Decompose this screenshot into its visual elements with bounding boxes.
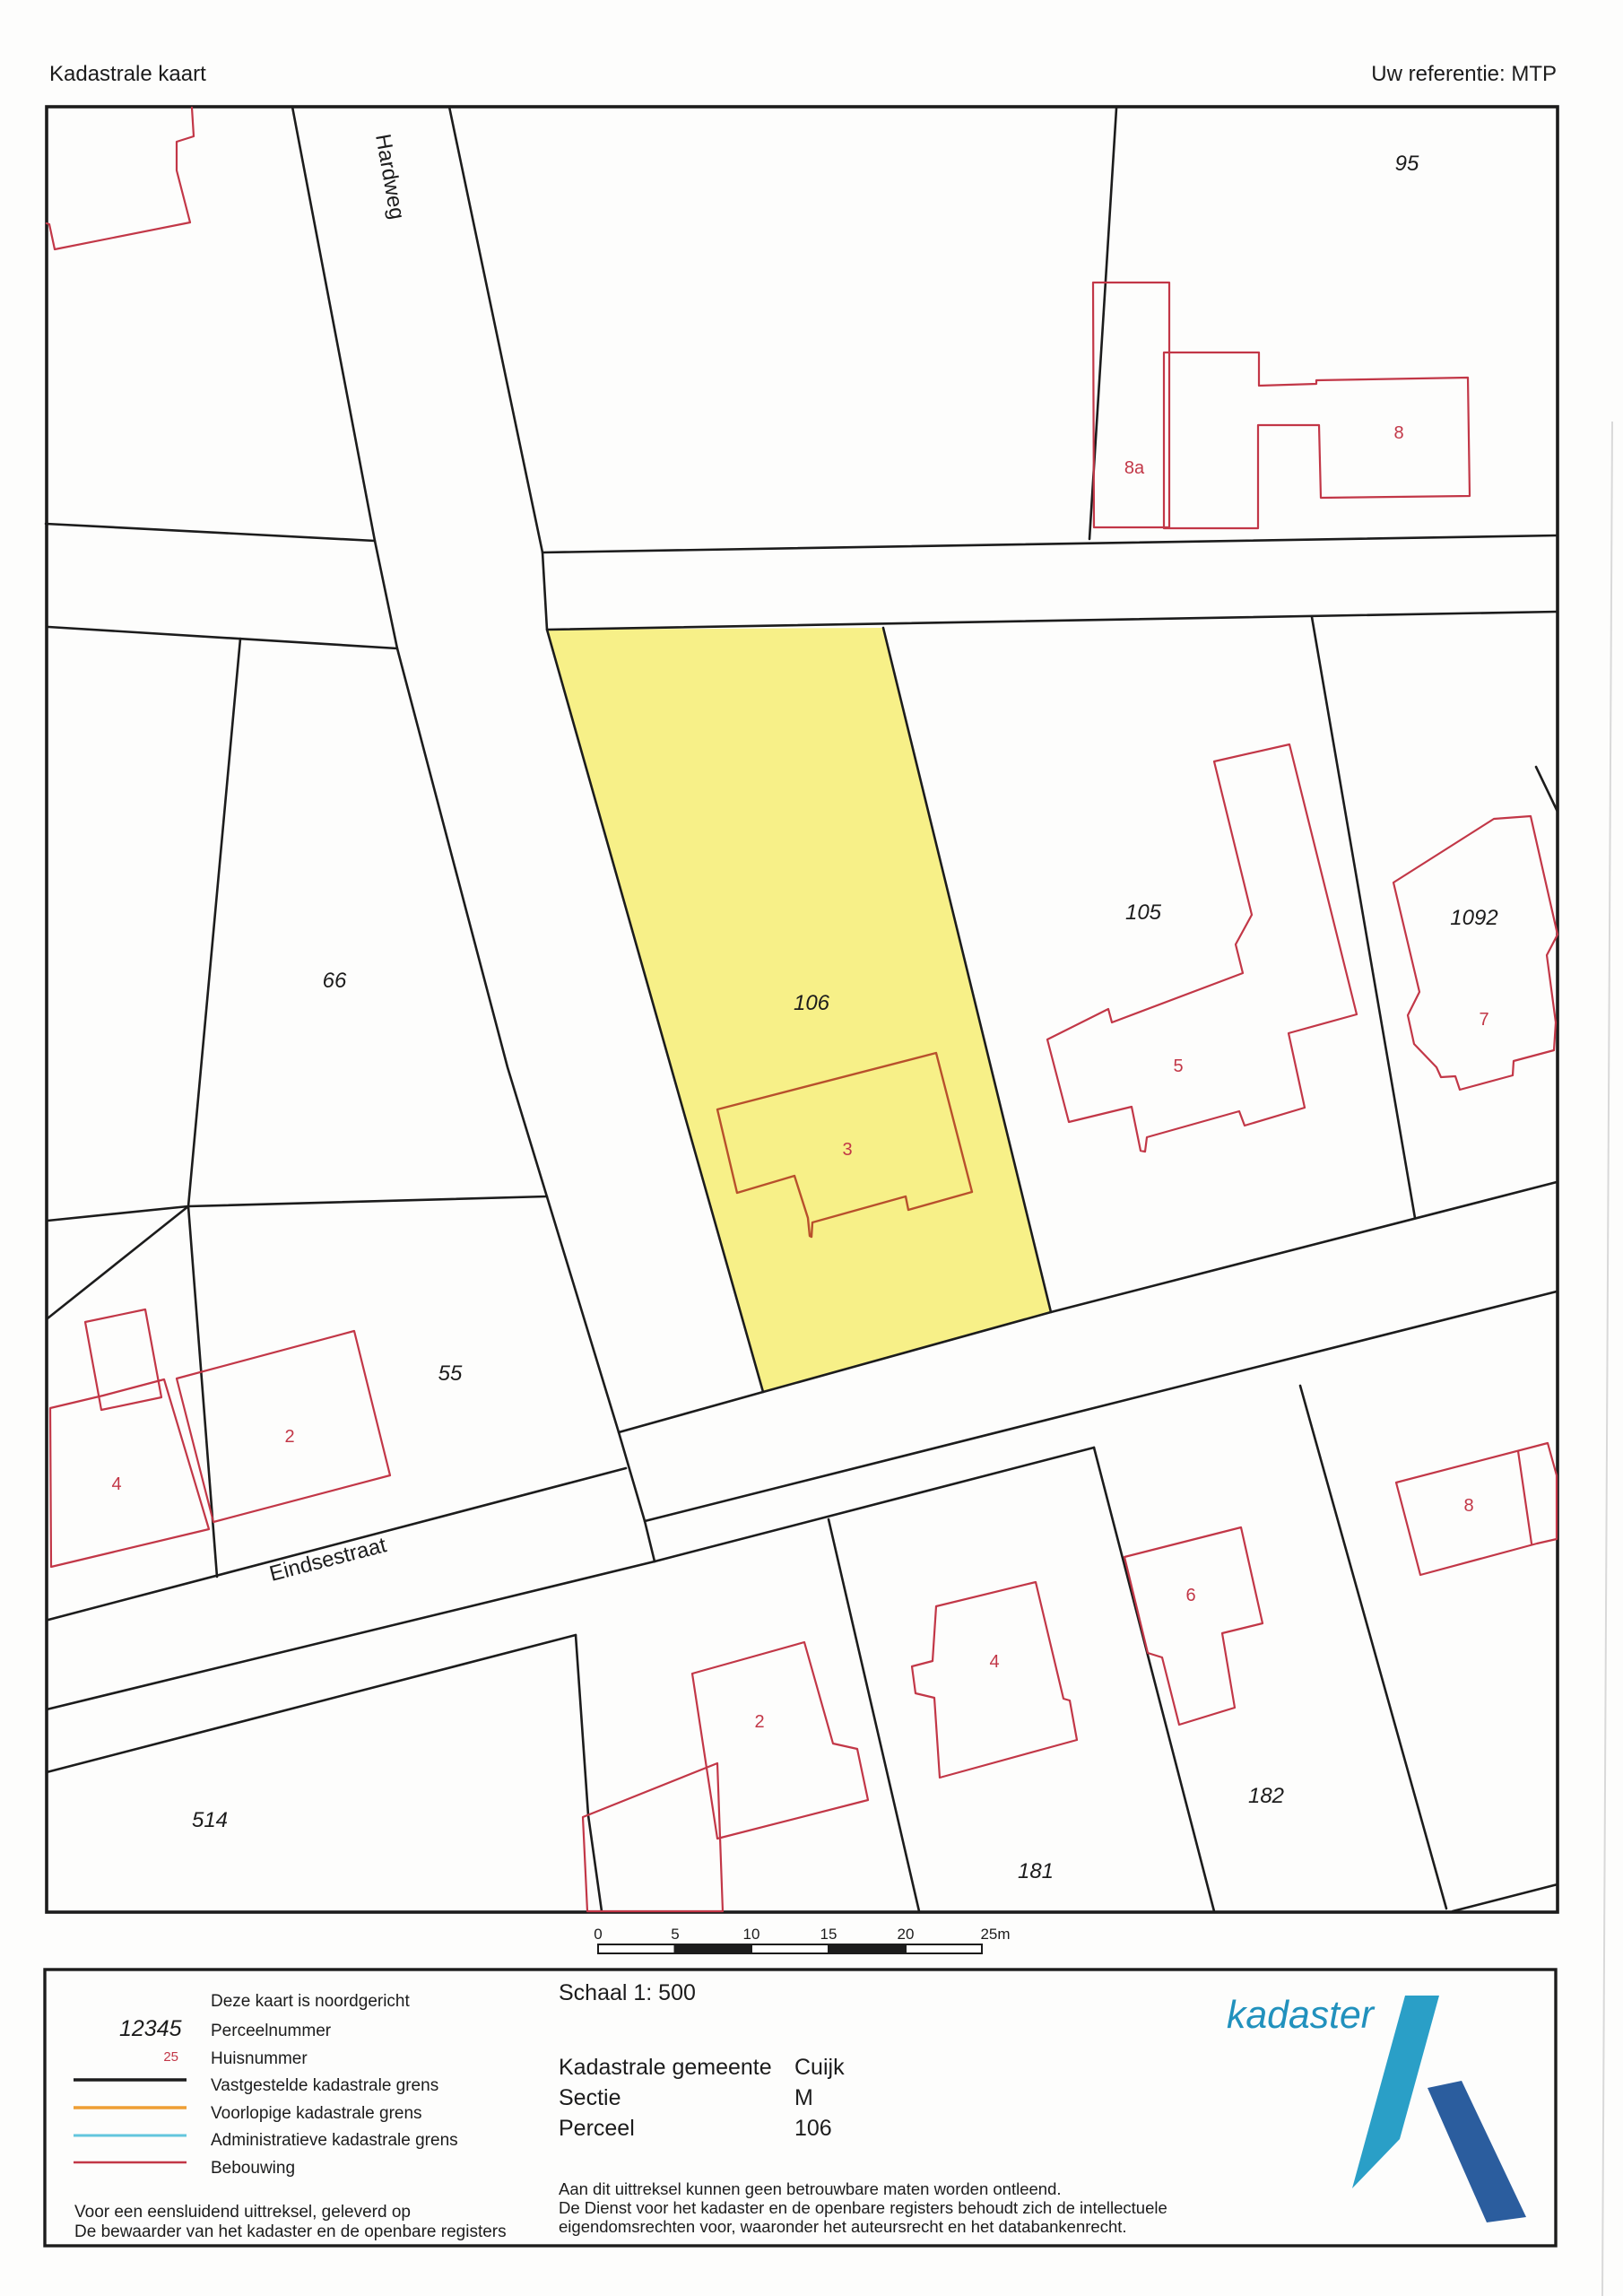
svg-text:M: M [794, 2085, 813, 2110]
svg-text:15: 15 [820, 1926, 838, 1943]
svg-text:Cuijk: Cuijk [794, 2055, 845, 2080]
svg-text:105: 105 [1125, 900, 1162, 925]
svg-text:Aan dit uittreksel kunnen geen: Aan dit uittreksel kunnen geen betrouwba… [559, 2179, 1062, 2198]
svg-text:4: 4 [989, 1652, 999, 1672]
svg-text:55: 55 [438, 1361, 463, 1386]
svg-text:1092: 1092 [1450, 906, 1497, 930]
svg-text:7: 7 [1479, 1010, 1488, 1030]
svg-text:8: 8 [1393, 423, 1403, 443]
svg-text:181: 181 [1018, 1859, 1054, 1883]
svg-text:Perceelnummer: Perceelnummer [211, 2022, 332, 2040]
svg-text:kadaster: kadaster [1227, 1993, 1376, 2037]
svg-text:20: 20 [898, 1926, 915, 1943]
svg-text:12345: 12345 [119, 2016, 182, 2041]
svg-text:eigendomsrechten voor, waarond: eigendomsrechten voor, waaronder het aut… [559, 2217, 1127, 2236]
svg-text:Sectie: Sectie [559, 2085, 621, 2110]
svg-text:Kadastrale gemeente: Kadastrale gemeente [559, 2055, 772, 2080]
svg-text:Bebouwing: Bebouwing [211, 2159, 295, 2178]
svg-text:Perceel: Perceel [559, 2116, 635, 2141]
svg-text:Deze kaart is noordgericht: Deze kaart is noordgericht [211, 1992, 410, 2011]
svg-text:66: 66 [323, 969, 347, 993]
svg-text:De bewaarder van het kadaster: De bewaarder van het kadaster en de open… [74, 2222, 507, 2241]
svg-text:3: 3 [842, 1140, 852, 1160]
svg-text:0: 0 [594, 1926, 602, 1943]
svg-text:Voor een eensluidend uittrekse: Voor een eensluidend uittreksel, gelever… [74, 2203, 411, 2222]
svg-text:5: 5 [671, 1926, 679, 1943]
svg-text:8: 8 [1463, 1496, 1473, 1516]
svg-text:4: 4 [111, 1474, 121, 1494]
svg-text:10: 10 [743, 1926, 760, 1943]
svg-text:Voorlopige kadastrale grens: Voorlopige kadastrale grens [211, 2104, 422, 2123]
svg-text:Huisnummer: Huisnummer [211, 2049, 308, 2068]
svg-text:2: 2 [754, 1712, 764, 1732]
svg-text:Administratieve kadastrale gre: Administratieve kadastrale grens [211, 2131, 458, 2150]
svg-text:8a: 8a [1124, 458, 1145, 478]
svg-text:25m: 25m [980, 1926, 1010, 1943]
svg-text:Uw referentie: MTP: Uw referentie: MTP [1371, 62, 1557, 86]
svg-text:2: 2 [284, 1427, 294, 1447]
svg-text:5: 5 [1173, 1057, 1183, 1076]
svg-text:6: 6 [1185, 1586, 1195, 1605]
svg-text:182: 182 [1248, 1784, 1284, 1808]
svg-text:Vastgestelde kadastrale grens: Vastgestelde kadastrale grens [211, 2076, 438, 2095]
svg-text:106: 106 [794, 2116, 832, 2141]
svg-text:25: 25 [163, 2049, 178, 2065]
svg-text:514: 514 [192, 1808, 228, 1832]
svg-text:106: 106 [794, 991, 830, 1015]
svg-text:Schaal 1: 500: Schaal 1: 500 [559, 1980, 696, 2005]
svg-text:De Dienst voor het kadaster en: De Dienst voor het kadaster en de openba… [559, 2198, 1167, 2217]
svg-text:Kadastrale kaart: Kadastrale kaart [49, 62, 206, 86]
svg-text:95: 95 [1395, 152, 1419, 176]
